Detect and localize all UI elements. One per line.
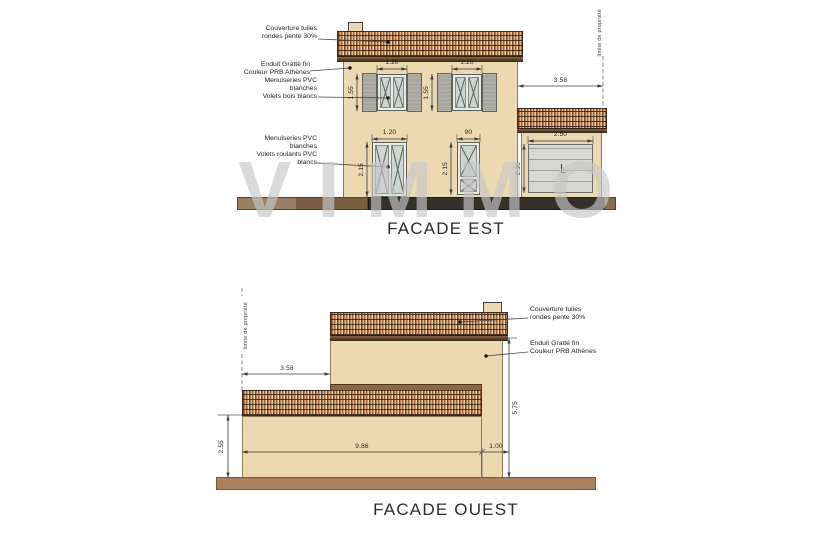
dim-label-ouest-low-height: 2.55	[217, 432, 226, 462]
facade-ouest-title: FACADE OUEST	[336, 500, 556, 520]
watermark: VIMMO	[238, 150, 639, 230]
property-line-label-ouest: limite de propriété	[241, 298, 250, 354]
est-window-1	[377, 74, 407, 111]
dim-label-ouest-offset: 3.58	[244, 366, 330, 373]
ouest-pent-roof-flashing	[330, 384, 482, 391]
annotation-ouest-roof: Couverture tuiles rondes pente 30%	[530, 306, 605, 322]
dim-label-window1-width: 1.20	[377, 60, 407, 67]
dim-label-window1-height: 1.55	[347, 78, 356, 108]
annotation-est-render: Enduit Gratté fin Couleur PRB Athènes	[220, 61, 310, 77]
annotation-est-roof: Couverture tuiles rondes pente 30%	[225, 25, 317, 41]
dim-label-ouest-total-height: 5.75	[511, 392, 520, 424]
dim-label-entrydoor-width: 90	[457, 130, 480, 137]
est-window1-shutter-left	[362, 73, 377, 112]
est-window-2	[452, 74, 482, 111]
annotation-est-windows: Menuiseries PVC blanches Volets bois bla…	[225, 77, 317, 101]
dim-label-garage-width: 2.50	[528, 132, 593, 139]
ouest-ground	[216, 477, 596, 490]
window-pane	[393, 77, 404, 108]
est-window2-shutter-left	[437, 73, 452, 112]
annotation-ouest-render: Enduit Gratté fin Couleur PRB Athènes	[530, 340, 610, 356]
ouest-pent-roof	[242, 390, 482, 417]
property-line-label-est: limite de propriété	[595, 6, 604, 60]
est-garage-roof	[517, 108, 607, 133]
dim-label-window2-width: 1.20	[452, 60, 482, 67]
est-roof	[337, 31, 523, 62]
window-pane	[468, 77, 479, 108]
dim-label-ouest-main-width: 9.86	[340, 444, 384, 451]
ouest-roof	[330, 312, 508, 341]
est-window2-shutter-right	[482, 73, 497, 112]
est-window1-shutter-right	[407, 73, 422, 112]
window-pane	[455, 77, 466, 108]
dim-label-window2-height: 1.55	[422, 78, 431, 108]
elevation-sheet: Couverture tuiles rondes pente 30% Endui…	[0, 0, 835, 540]
dim-label-ouest-right-width: 1.00	[483, 444, 509, 451]
dim-label-frenchdoor-width: 1.20	[372, 130, 407, 137]
dim-label-est-offset: 3.58	[518, 78, 603, 85]
window-pane	[380, 77, 391, 108]
